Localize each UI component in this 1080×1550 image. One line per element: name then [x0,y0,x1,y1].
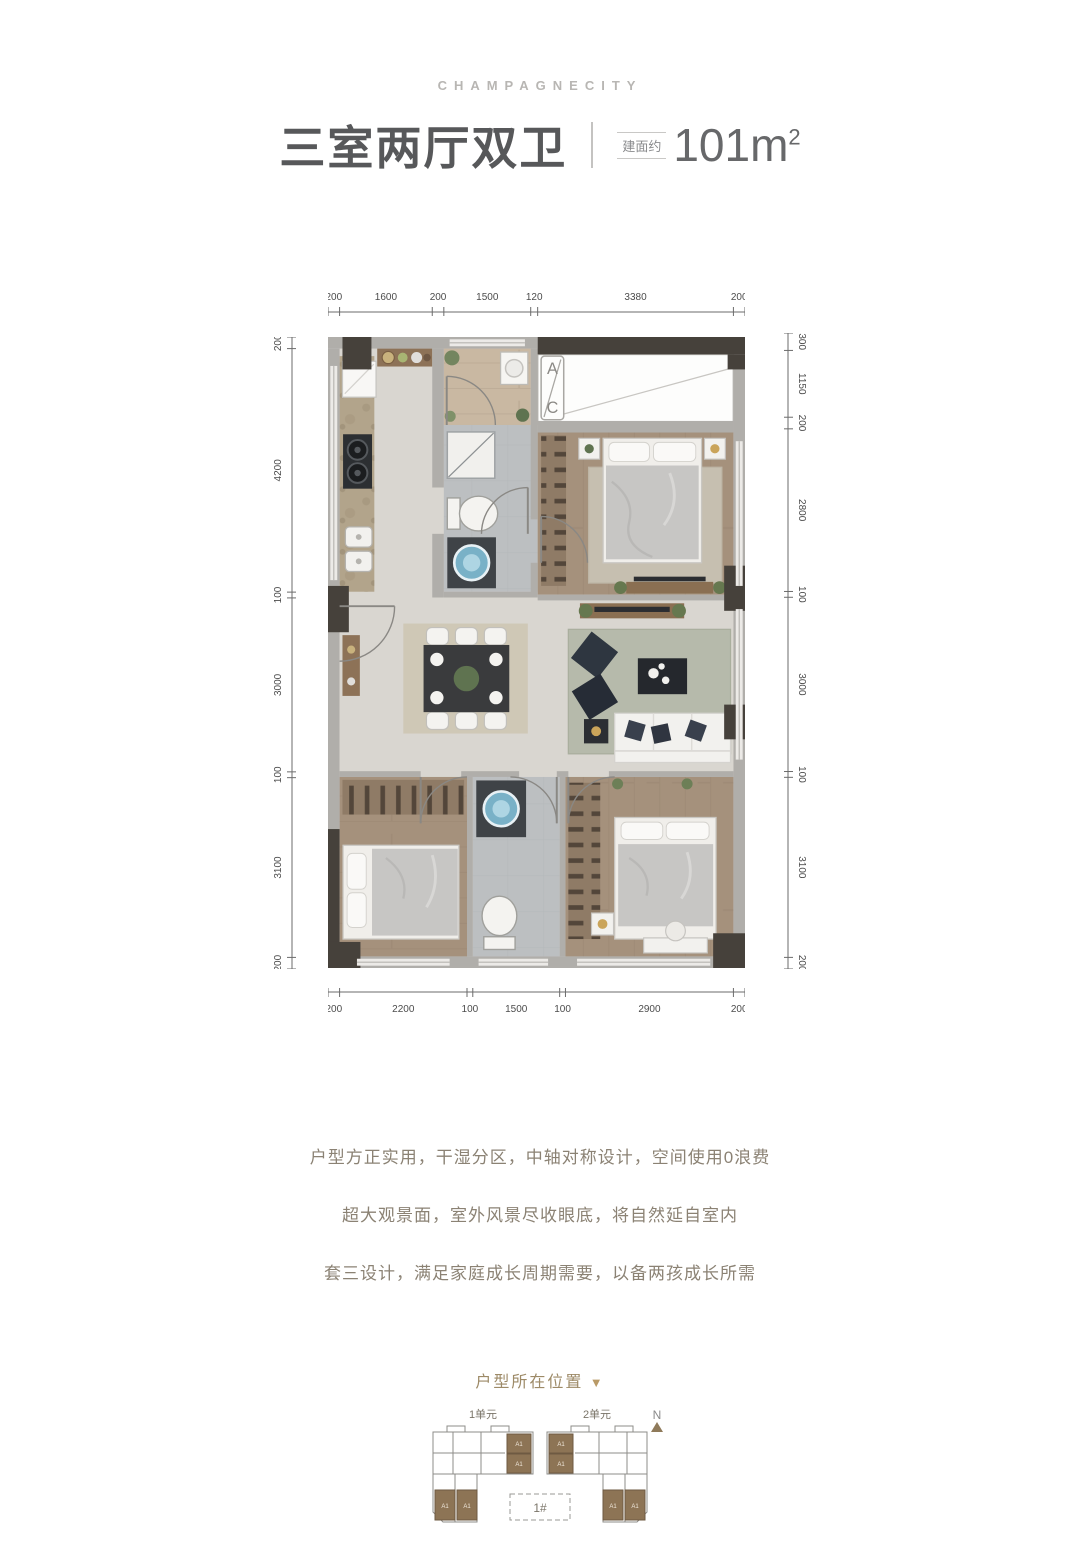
svg-text:A1: A1 [463,1504,471,1510]
svg-text:2200: 2200 [392,1004,415,1015]
svg-text:3000: 3000 [273,673,284,696]
svg-text:A1: A1 [609,1504,617,1510]
description: 户型方正实用，干湿分区，中轴对称设计，空间使用0浪费 超大观景面，室外风景尽收眼… [0,1143,1080,1317]
svg-text:100: 100 [273,766,284,783]
kitchen [340,349,433,592]
description-line-1: 户型方正实用，干湿分区，中轴对称设计，空间使用0浪费 [0,1143,1080,1168]
svg-text:3380: 3380 [624,292,647,303]
dimension-left: 200420010030001003100200 [266,337,296,969]
brand-logo: CHAMPAGNECITY [0,78,1080,93]
north-arrow-icon [651,1422,663,1432]
svg-text:4200: 4200 [273,459,284,482]
unit1-label: 1单元 [469,1408,497,1421]
svg-text:1150: 1150 [796,373,807,395]
svg-text:200: 200 [273,954,284,969]
svg-text:200: 200 [430,292,447,303]
svg-text:A1: A1 [557,1462,565,1468]
svg-text:100: 100 [273,586,284,603]
toilet-2 [482,896,517,935]
dimension-bottom: 200220010015001002900200 [328,988,745,1018]
title-divider [591,122,593,168]
svg-text:100: 100 [796,586,807,603]
svg-text:A1: A1 [441,1504,449,1510]
plant [444,350,459,365]
area-value: 101m2 [673,118,800,172]
svg-text:100: 100 [462,1004,479,1015]
ac-letter-a: A [547,360,558,378]
bathroom-2 [473,777,560,956]
svg-text:100: 100 [796,766,807,783]
title-row: 三室两厅双卫 建面约 101m2 [0,112,1080,178]
location-title: 户型所在位置 ▼ [0,1368,1080,1392]
floorplan-flyer: CHAMPAGNECITY 三室两厅双卫 建面约 101m2 200160020… [0,0,1080,1550]
description-line-3: 套三设计，满足家庭成长周期需要，以备两孩成长所需 [0,1259,1080,1284]
bathroom-1 [444,425,538,592]
description-line-2: 超大观景面，室外风景尽收眼底，将自然延自室内 [0,1201,1080,1226]
location-title-text: 户型所在位置 [475,1374,583,1391]
svg-text:200: 200 [731,1004,745,1015]
bedroom-2 [340,777,467,956]
svg-text:2800: 2800 [796,499,807,522]
ac-closet: A C [541,356,564,420]
area-label: 建面约 [617,132,666,159]
area-number: 101m [673,119,788,171]
svg-text:300: 300 [796,333,807,350]
north-label: N [653,1408,662,1422]
svg-text:A1: A1 [557,1442,565,1448]
toilet-tank [447,498,460,529]
svg-text:A1: A1 [515,1462,523,1468]
down-triangle-icon: ▼ [590,1375,605,1390]
building-label: 1# [533,1501,547,1515]
shoe-cabinet [342,635,359,696]
floor-plan: A C [328,337,745,968]
dimension-top: 200160020015001203380200 [328,288,745,316]
unit-type-title: 三室两厅双卫 [279,112,567,178]
svg-text:1500: 1500 [505,1004,528,1015]
svg-text:1500: 1500 [476,292,499,303]
laundry-room [444,349,531,425]
svg-text:A1: A1 [631,1504,639,1510]
svg-text:1600: 1600 [375,292,398,303]
svg-text:200: 200 [731,292,745,303]
ac-letter-c: C [547,399,559,417]
svg-text:100: 100 [554,1004,571,1015]
unit2-label: 2单元 [583,1408,611,1421]
svg-text:3000: 3000 [796,673,807,696]
toilet [459,496,497,531]
svg-text:2900: 2900 [638,1004,661,1015]
master-bedroom [538,433,734,595]
svg-text:3100: 3100 [796,856,807,879]
svg-text:200: 200 [328,1004,343,1015]
svg-text:200: 200 [796,955,807,969]
svg-text:200: 200 [328,292,343,303]
svg-text:3100: 3100 [273,856,284,879]
floor-plan-drawing: A C [328,337,745,968]
tv-bench [626,582,713,594]
dimension-right: 3001150200280010030001003100200 [784,333,814,969]
bedroom-3 [565,777,733,956]
svg-text:120: 120 [526,292,543,303]
svg-text:200: 200 [796,415,807,432]
svg-text:200: 200 [273,337,284,351]
platform: A C [538,354,734,432]
building-locator-drawing: 1单元 2单元 N [395,1402,685,1542]
svg-text:A1: A1 [515,1442,523,1448]
building-locator: 1单元 2单元 N [395,1402,685,1542]
area-superscript: 2 [788,125,800,150]
